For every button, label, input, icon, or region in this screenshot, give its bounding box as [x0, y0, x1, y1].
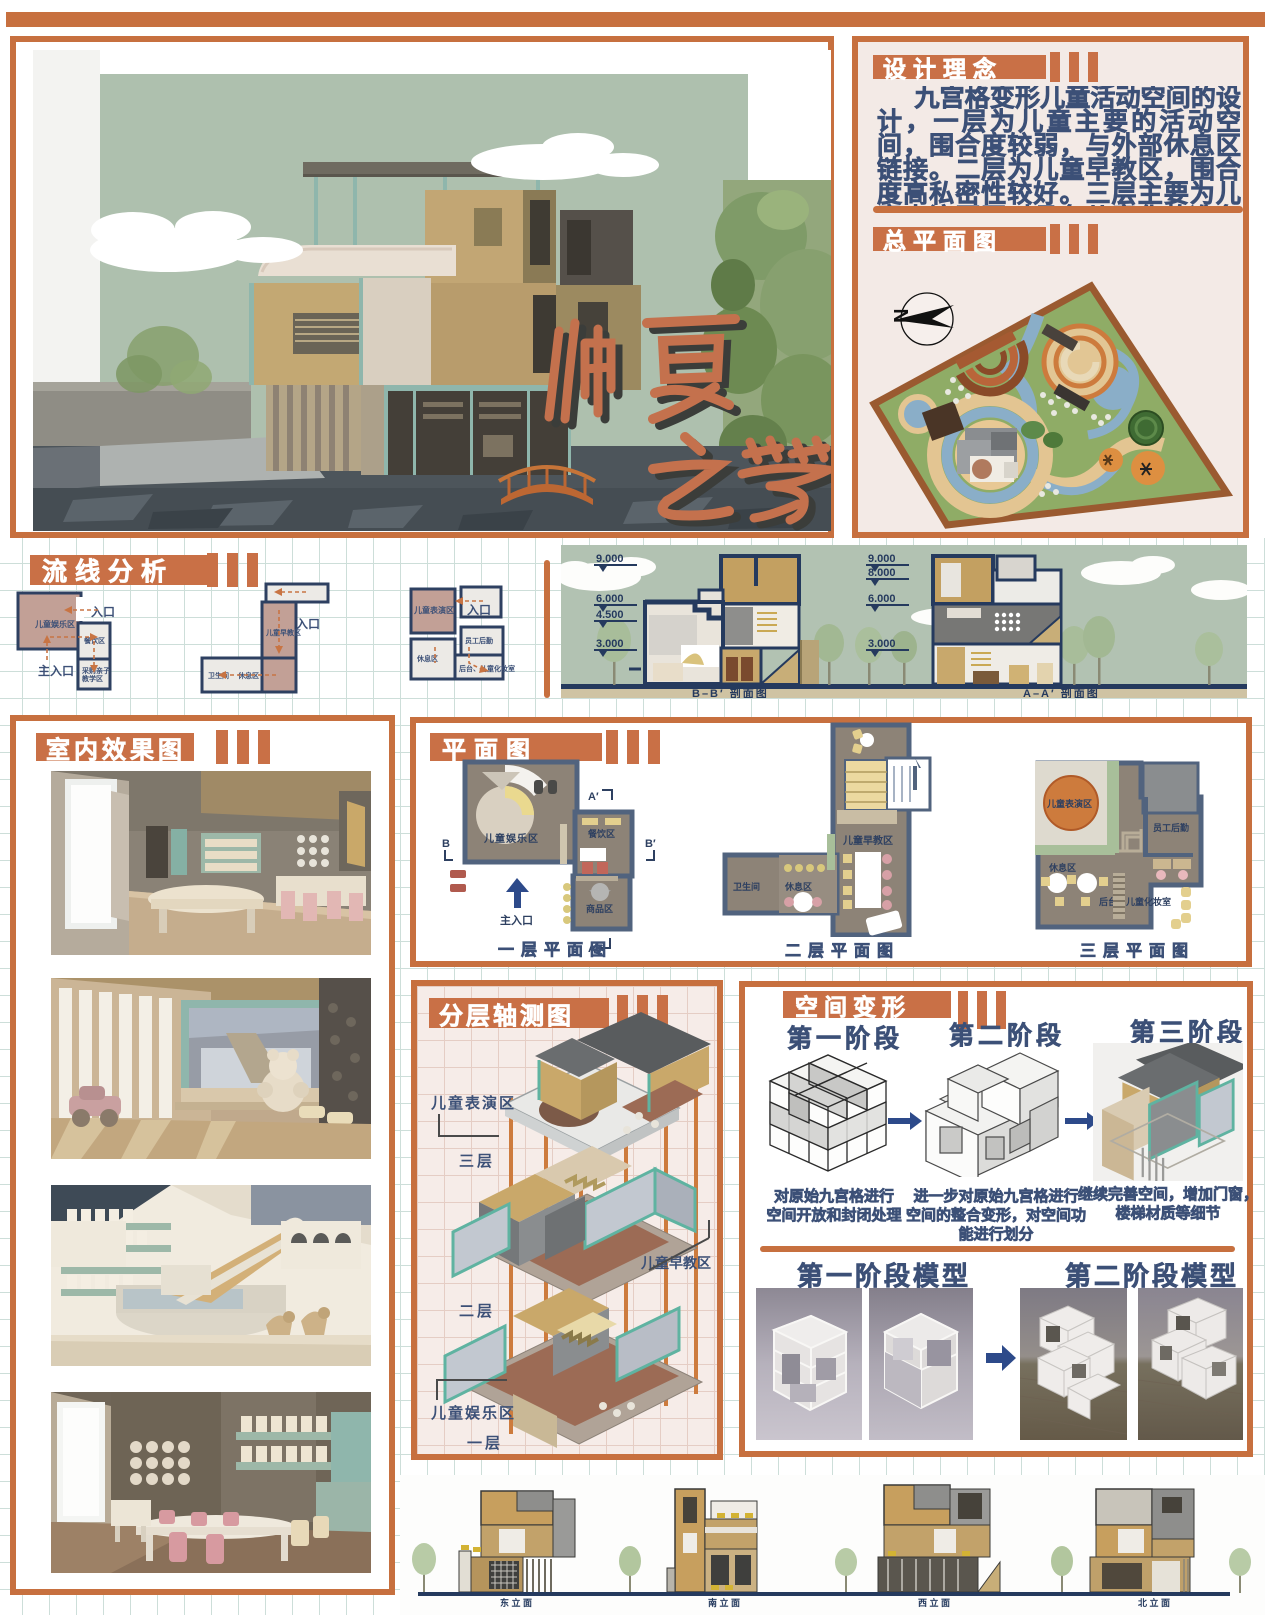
svg-text:6.000: 6.000: [868, 593, 896, 605]
svg-text:一层: 一层: [467, 1435, 503, 1452]
svg-text:9.000: 9.000: [868, 553, 896, 565]
svg-text:后台、儿童化妆室: 后台、儿童化妆室: [459, 664, 515, 673]
svg-text:3.000: 3.000: [596, 638, 624, 650]
svg-text:儿童表演区: 儿童表演区: [1046, 798, 1092, 809]
svg-text:儿童表演区: 儿童表演区: [413, 605, 454, 615]
svg-text:儿童娱乐区: 儿童娱乐区: [34, 619, 75, 629]
svg-text:休息区: 休息区: [784, 881, 812, 892]
svg-text:餐饮区: 餐饮区: [587, 828, 615, 839]
svg-text:儿童表演区: 儿童表演区: [430, 1094, 516, 1112]
svg-text:休息区: 休息区: [1048, 862, 1076, 873]
svg-text:入口: 入口: [467, 603, 491, 617]
svg-text:9.000: 9.000: [596, 553, 624, 565]
svg-text:卫生间: 卫生间: [733, 881, 760, 892]
svg-text:儿童早教区: 儿童早教区: [265, 628, 301, 637]
svg-text:A–A′ 剖面图: A–A′ 剖面图: [1023, 686, 1100, 698]
svg-text:B–B′ 剖面图: B–B′ 剖面图: [692, 686, 769, 698]
svg-text:三层: 三层: [459, 1153, 495, 1170]
svg-text:主入口: 主入口: [38, 663, 74, 678]
svg-text:儿童娱乐区: 儿童娱乐区: [430, 1404, 516, 1422]
svg-text:6.000: 6.000: [596, 593, 624, 605]
svg-text:儿童早教区: 儿童早教区: [842, 834, 893, 847]
svg-text:教学区: 教学区: [81, 674, 103, 683]
svg-text:员工后勤: 员工后勤: [1153, 822, 1189, 833]
svg-text:3.000: 3.000: [868, 638, 896, 650]
svg-text:西 立 面: 西 立 面: [918, 1597, 950, 1608]
svg-text:8.000: 8.000: [868, 567, 896, 579]
svg-text:B′: B′: [645, 838, 656, 850]
svg-text:南 立 面: 南 立 面: [708, 1597, 740, 1608]
svg-text:儿童娱乐区: 儿童娱乐区: [483, 832, 539, 845]
svg-text:入口: 入口: [91, 605, 115, 619]
svg-text:二层: 二层: [459, 1303, 495, 1320]
svg-text:北 立 面: 北 立 面: [1138, 1597, 1170, 1608]
svg-text:员工后勤: 员工后勤: [465, 636, 493, 645]
svg-text:主入口: 主入口: [500, 913, 533, 927]
svg-text:入口: 入口: [296, 617, 320, 631]
svg-text:4.500: 4.500: [596, 609, 624, 621]
svg-text:商品区: 商品区: [586, 903, 613, 914]
svg-text:A′: A′: [588, 791, 599, 803]
svg-text:B: B: [442, 838, 450, 850]
svg-text:后台、儿童化妆室: 后台、儿童化妆室: [1099, 896, 1171, 907]
svg-text:东 立 面: 东 立 面: [500, 1597, 532, 1608]
